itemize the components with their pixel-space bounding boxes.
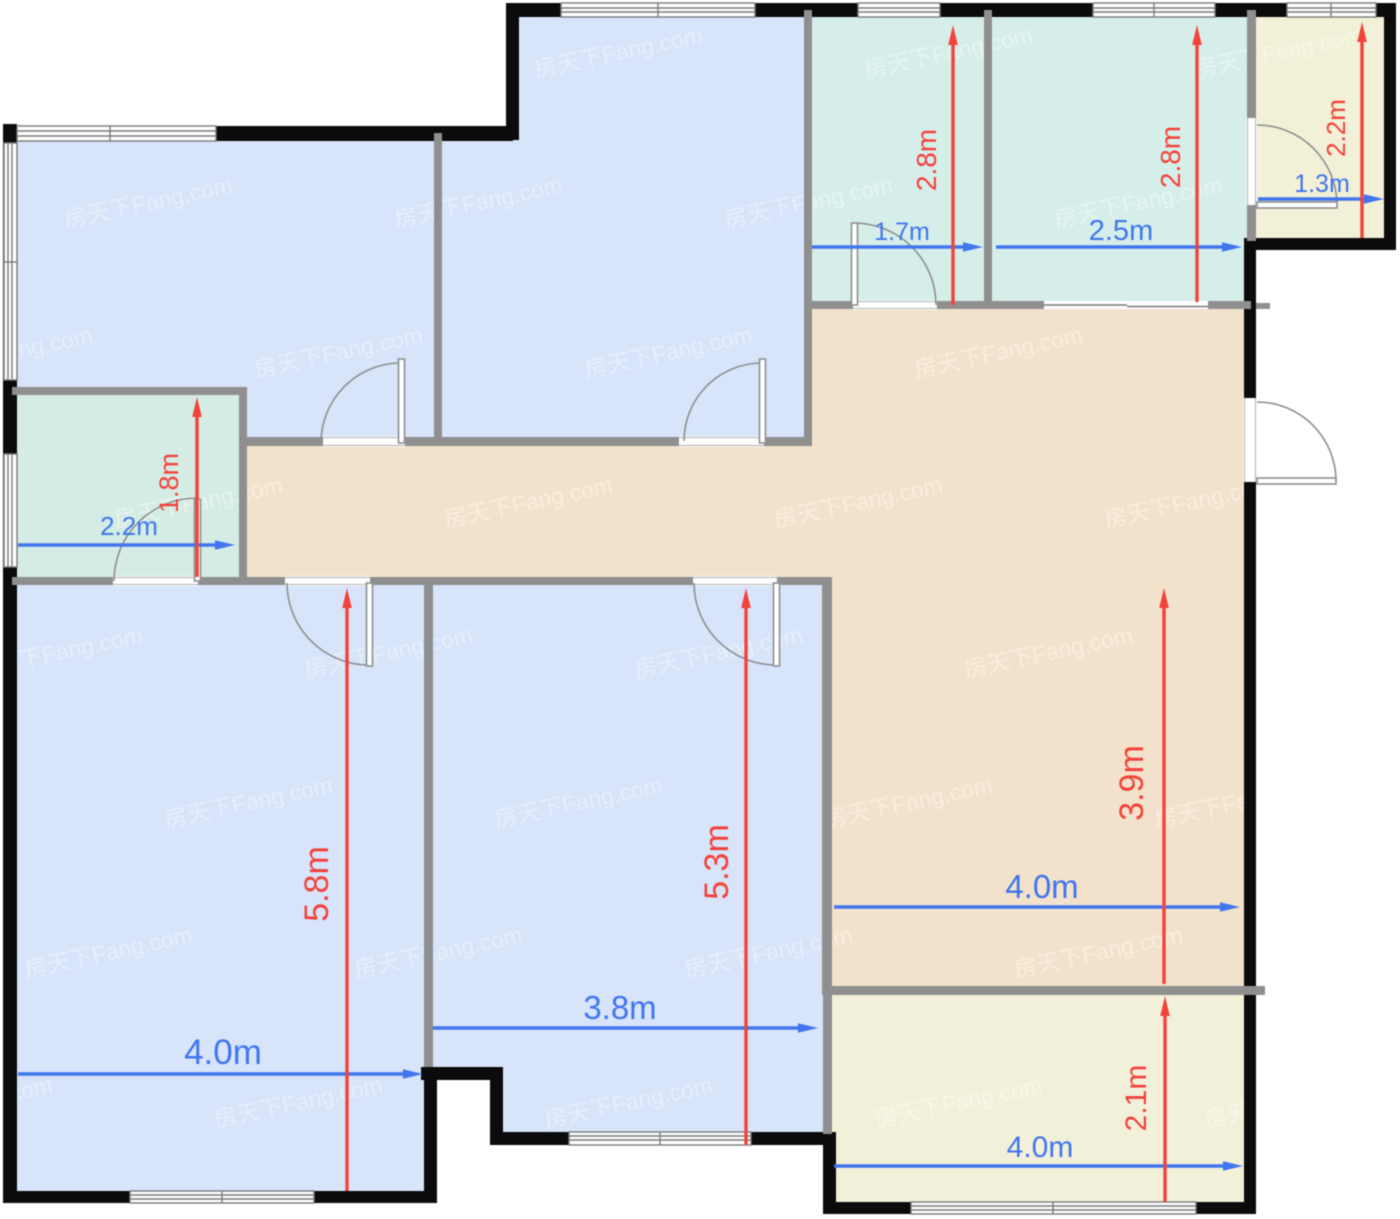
svg-text:2.1m: 2.1m bbox=[1120, 1065, 1153, 1132]
svg-text:4.0m: 4.0m bbox=[1007, 1131, 1074, 1164]
svg-text:1.8m: 1.8m bbox=[154, 453, 184, 513]
svg-text:2.2m: 2.2m bbox=[100, 511, 158, 541]
svg-text:2.2m: 2.2m bbox=[1321, 99, 1351, 157]
svg-text:2.8m: 2.8m bbox=[1155, 126, 1186, 188]
svg-text:5.8m: 5.8m bbox=[298, 846, 336, 922]
svg-text:2.8m: 2.8m bbox=[911, 129, 942, 191]
svg-text:1.7m: 1.7m bbox=[874, 218, 930, 246]
svg-text:5.3m: 5.3m bbox=[698, 824, 736, 900]
svg-text:4.0m: 4.0m bbox=[184, 1033, 262, 1072]
svg-text:4.0m: 4.0m bbox=[1005, 868, 1078, 905]
svg-text:3.9m: 3.9m bbox=[1113, 745, 1151, 821]
svg-text:2.5m: 2.5m bbox=[1089, 215, 1153, 247]
svg-text:1.3m: 1.3m bbox=[1294, 170, 1350, 198]
svg-text:3.8m: 3.8m bbox=[583, 989, 656, 1026]
